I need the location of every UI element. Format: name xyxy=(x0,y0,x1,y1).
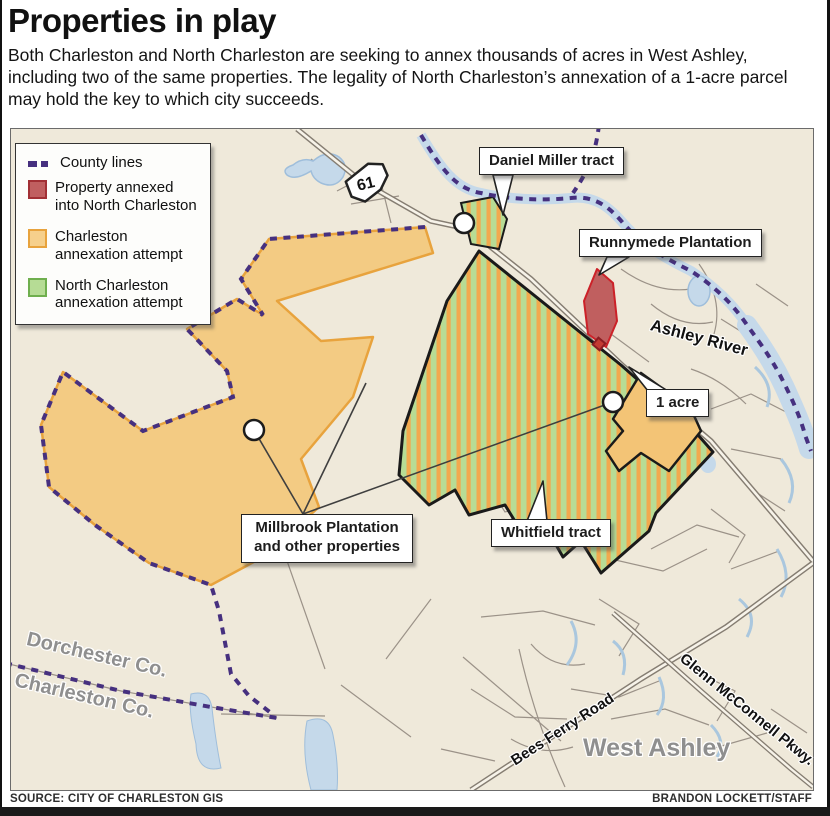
legend-item-county-lines: County lines xyxy=(28,154,200,171)
callout-one-acre: 1 acre xyxy=(646,389,709,417)
legend-label: Charleston annexation attempt xyxy=(55,228,200,263)
legend: County lines Property annexed into North… xyxy=(15,143,211,325)
daniel-miller-marker-icon xyxy=(454,213,474,233)
legend-item-charleston: Charleston annexation attempt xyxy=(28,228,200,263)
author-credit: BRANDON LOCKETT/STAFF xyxy=(652,793,812,805)
page-subtitle: Both Charleston and North Charleston are… xyxy=(8,44,820,110)
legend-label: County lines xyxy=(60,154,143,171)
callout-whitfield: Whitfield tract xyxy=(491,519,611,547)
source-credit: SOURCE: CITY OF CHARLESTON GIS xyxy=(10,793,223,805)
map-canvas: 61 County lines Property annexed into No… xyxy=(10,128,814,791)
callout-daniel-miller: Daniel Miller tract xyxy=(479,147,624,175)
callout-millbrook: Millbrook Plantation and other propertie… xyxy=(241,514,413,563)
bottom-black-bar xyxy=(0,807,830,816)
page-left-border xyxy=(0,0,2,816)
callout-runnymede: Runnymede Plantation xyxy=(579,229,762,257)
legend-label: North Charleston annexation attempt xyxy=(55,277,200,312)
label-west-ashley: West Ashley xyxy=(583,734,730,763)
page-title: Properties in play xyxy=(8,2,276,40)
legend-item-north-charleston: North Charleston annexation attempt xyxy=(28,277,200,312)
millbrook-marker-icon xyxy=(244,420,264,440)
one-acre-marker-icon xyxy=(603,392,623,412)
charleston-swatch-icon xyxy=(28,229,47,248)
county-line-dash-icon xyxy=(28,161,52,167)
legend-label: Property annexed into North Charleston xyxy=(55,179,200,214)
annexed-swatch-icon xyxy=(28,180,47,199)
north-charleston-swatch-icon xyxy=(28,278,47,297)
legend-item-annexed: Property annexed into North Charleston xyxy=(28,179,200,214)
